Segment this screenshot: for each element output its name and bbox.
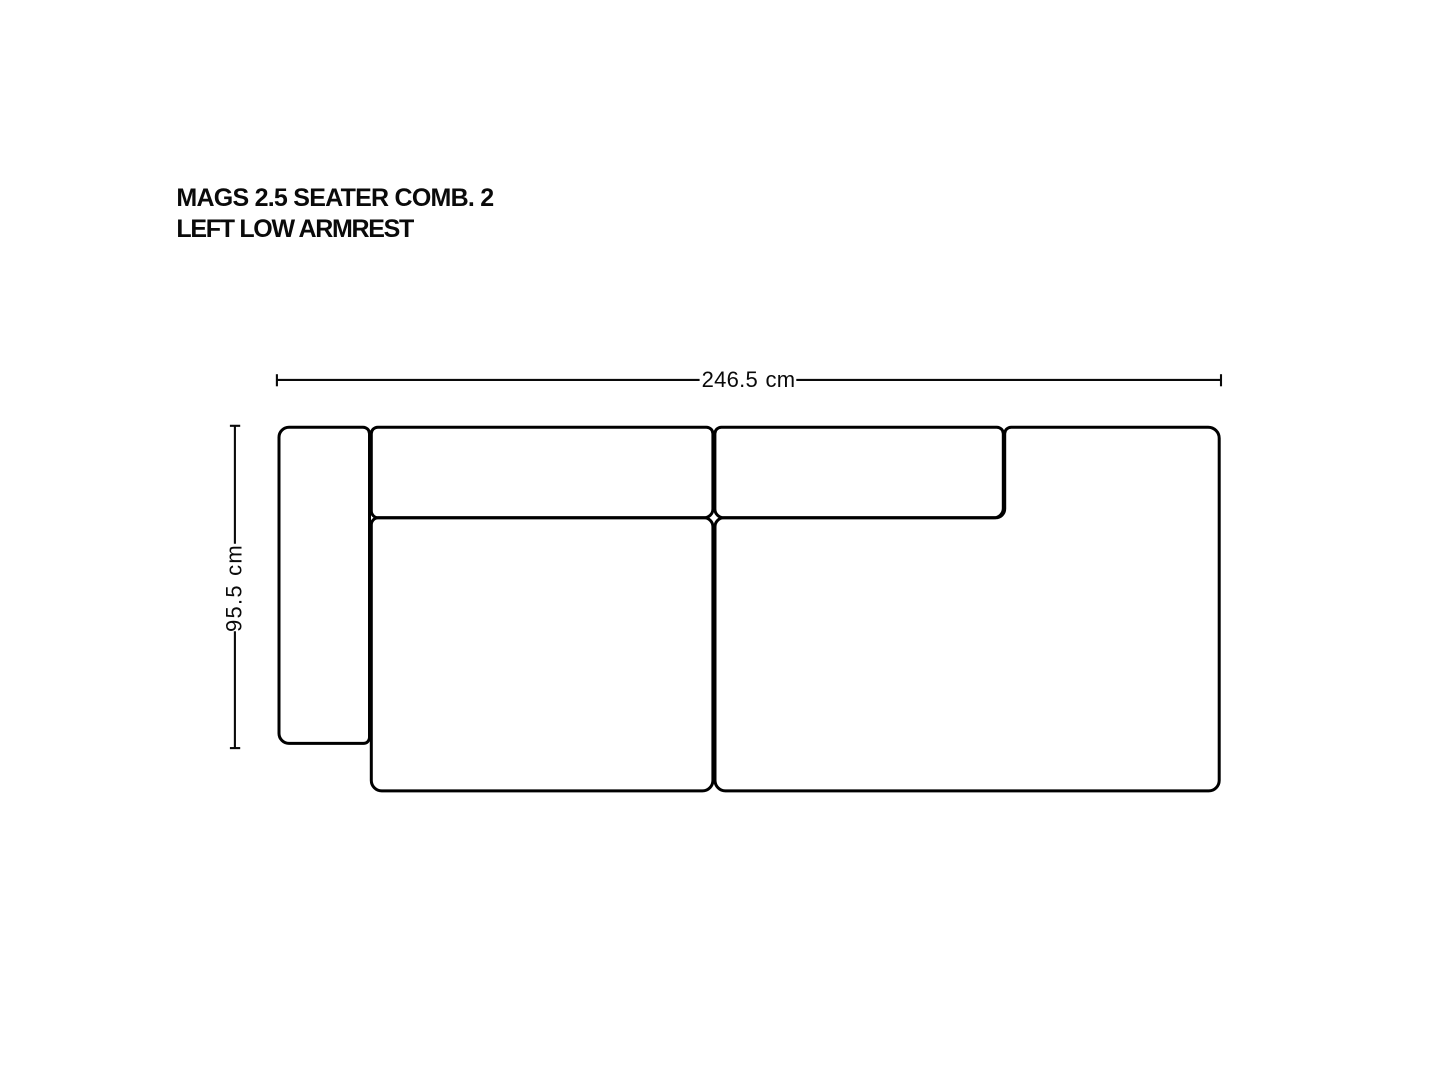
svg-text:246.5 cm: 246.5 cm <box>702 367 796 392</box>
svg-text:95.5 cm: 95.5 cm <box>222 544 247 632</box>
